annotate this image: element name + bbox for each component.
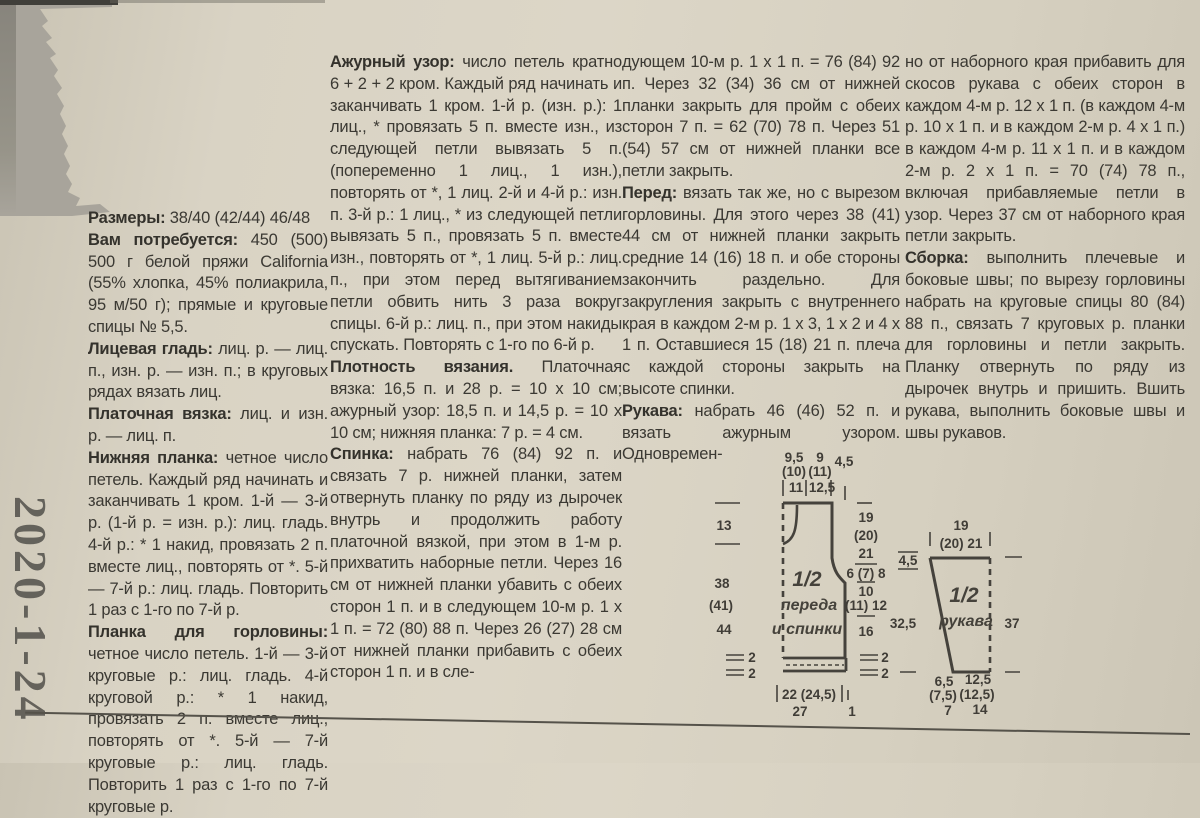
paragraph-gauge: Плотность вязания.Платочная вязка: 16,5 … bbox=[330, 357, 622, 444]
body-armhole-height-2: (20) bbox=[854, 528, 878, 543]
paragraph-neck-band: Планка для горловины:четное число петель… bbox=[88, 622, 328, 818]
paragraph-lace-pattern: Ажурный узор:число петель кратно 6 + 2 +… bbox=[330, 52, 622, 357]
torn-paper-shadow bbox=[0, 0, 112, 216]
scan-artifact-blob bbox=[0, 0, 340, 220]
body-hem-right-2: 2 bbox=[881, 666, 889, 681]
paragraph-label: Лицевая гладь: bbox=[88, 340, 218, 358]
body-bottom-width-2: 27 bbox=[792, 704, 807, 719]
sleeve-cap-measure: 4,5 bbox=[899, 553, 918, 568]
paragraph-assembly: Сборка:выполнить плечевые и боковые швы;… bbox=[905, 248, 1185, 444]
text-column-1: Размеры:38/40 (42/44) 46/48 Вам потребуе… bbox=[88, 208, 328, 818]
paragraph-label: Сборка: bbox=[905, 249, 986, 267]
paragraph-garter: Платочная вязка:лиц. и изн. р. — лиц. п. bbox=[88, 404, 328, 448]
sleeve-bottom-left-2: (7,5) bbox=[929, 688, 957, 703]
scan-top-edge bbox=[0, 0, 118, 5]
body-neck-width-3: 12,5 bbox=[809, 480, 836, 495]
paragraph-sizes: Размеры:38/40 (42/44) 46/48 bbox=[88, 208, 328, 230]
body-side-length-2: (41) bbox=[709, 598, 733, 613]
body-armhole-bindoff-2: 10 bbox=[858, 584, 873, 599]
body-hem-left-2: 2 bbox=[748, 666, 756, 681]
sleeve-top-width-2: (20) 21 bbox=[940, 536, 983, 551]
text-column-4: но от наборного края прибавить для скосо… bbox=[905, 52, 1185, 444]
magazine-scan-page: 2020-1-24 Размеры:38/40 (42/44) 46/48 Ва… bbox=[0, 0, 1200, 763]
body-neck-curve bbox=[783, 505, 797, 544]
paragraph-label: Ажурный узор: bbox=[330, 53, 462, 71]
body-piece-label-1: переда bbox=[781, 597, 837, 614]
paragraph-label: Спинка: bbox=[330, 445, 407, 463]
body-neck-depth: 13 bbox=[716, 518, 732, 533]
body-hem-left-1: 2 bbox=[748, 650, 756, 665]
sleeve-bottom-right-3: 14 bbox=[972, 702, 988, 717]
body-shoulder-width-3: 11 bbox=[789, 480, 804, 495]
body-shoulder-width-1: 9,5 bbox=[785, 450, 804, 465]
paragraph-label: Нижняя планка: bbox=[88, 449, 226, 467]
sleeve-bottom-right-2: (12,5) bbox=[959, 687, 994, 702]
body-piece-label-2: и спинки bbox=[772, 621, 842, 638]
body-piece-label-fraction: 1/2 bbox=[792, 568, 822, 591]
paragraph-label: Платочная вязка: bbox=[88, 405, 240, 423]
sleeve-piece-label: рукава bbox=[938, 613, 993, 630]
schematic-diagram: 9,5 (10) 11 9 (11) 12,5 4,5 13 38 (41) 4… bbox=[660, 450, 1200, 763]
paragraph-label: Размеры: bbox=[88, 209, 170, 227]
paragraph-label: Вам потребуется: bbox=[88, 231, 251, 249]
body-shoulder-width-2: (10) bbox=[782, 464, 806, 479]
paragraph-sleeves-continued: но от наборного края прибавить для скосо… bbox=[905, 52, 1185, 248]
paragraph-stockinette: Лицевая гладь:лиц. р. — лиц. п., изн. р.… bbox=[88, 339, 328, 404]
body-neck-width-2: (11) bbox=[808, 464, 831, 479]
body-neck-width-1: 9 bbox=[816, 450, 824, 465]
paragraph-label: Перед: bbox=[622, 184, 683, 202]
stamp-date: 2020-1-24 bbox=[4, 496, 57, 766]
scan-top-edge-fade bbox=[110, 0, 325, 3]
body-side-length-1: 38 bbox=[714, 576, 730, 591]
paragraph-label: Планка для горловины: bbox=[88, 623, 328, 641]
paragraph-materials: Вам потребуется:450 (500) 500 г белой пр… bbox=[88, 230, 328, 339]
scan-edge-shadow bbox=[0, 0, 16, 215]
sleeve-bottom-left-1: 6,5 bbox=[935, 674, 954, 689]
paragraph-lower-band: Нижняя планка:четное число петель. Кажды… bbox=[88, 448, 328, 622]
paragraph-label: Плотность вязания. bbox=[330, 358, 541, 376]
body-hem-right-1: 2 bbox=[881, 650, 889, 665]
sleeve-piece-label-fraction: 1/2 bbox=[949, 584, 979, 607]
body-top-right-measure: 4,5 bbox=[835, 454, 854, 469]
sleeve-bottom-right-1: 12,5 bbox=[965, 672, 992, 687]
body-armhole-bindoff-1: 6 (7) 8 bbox=[846, 566, 886, 581]
paragraph-back: Спинка:набрать 76 (84) 92 п. и связать 7… bbox=[330, 444, 622, 684]
sleeve-right-length: 37 bbox=[1004, 616, 1019, 631]
paragraph-back-continued: дующем 10-м р. 1 х 1 п. = 76 (84) 92 п. … bbox=[622, 52, 900, 183]
body-armhole-height-3: 21 bbox=[858, 546, 874, 561]
paragraph-label: Рукава: bbox=[622, 402, 695, 420]
body-armhole-height-1: 19 bbox=[858, 510, 873, 525]
sleeve-left-length: 32,5 bbox=[890, 616, 917, 631]
body-armhole-bindoff-3: (11) 12 bbox=[845, 598, 887, 613]
text-column-2: Ажурный узор:число петель кратно 6 + 2 +… bbox=[330, 52, 622, 684]
body-bottom-corner-measure: 1 bbox=[848, 704, 856, 719]
sleeve-bottom-left-3: 7 bbox=[944, 703, 952, 718]
body-lower-side-measure: 16 bbox=[858, 624, 874, 639]
sleeve-top-width-1: 19 bbox=[953, 518, 968, 533]
body-bottom-width-1: 22 (24,5) bbox=[782, 687, 836, 702]
body-side-length-3: 44 bbox=[716, 622, 732, 637]
text-column-3: дующем 10-м р. 1 х 1 п. = 76 (84) 92 п. … bbox=[622, 52, 900, 466]
paragraph-front: Перед:вязать так же, но с вырезом горлов… bbox=[622, 183, 900, 401]
